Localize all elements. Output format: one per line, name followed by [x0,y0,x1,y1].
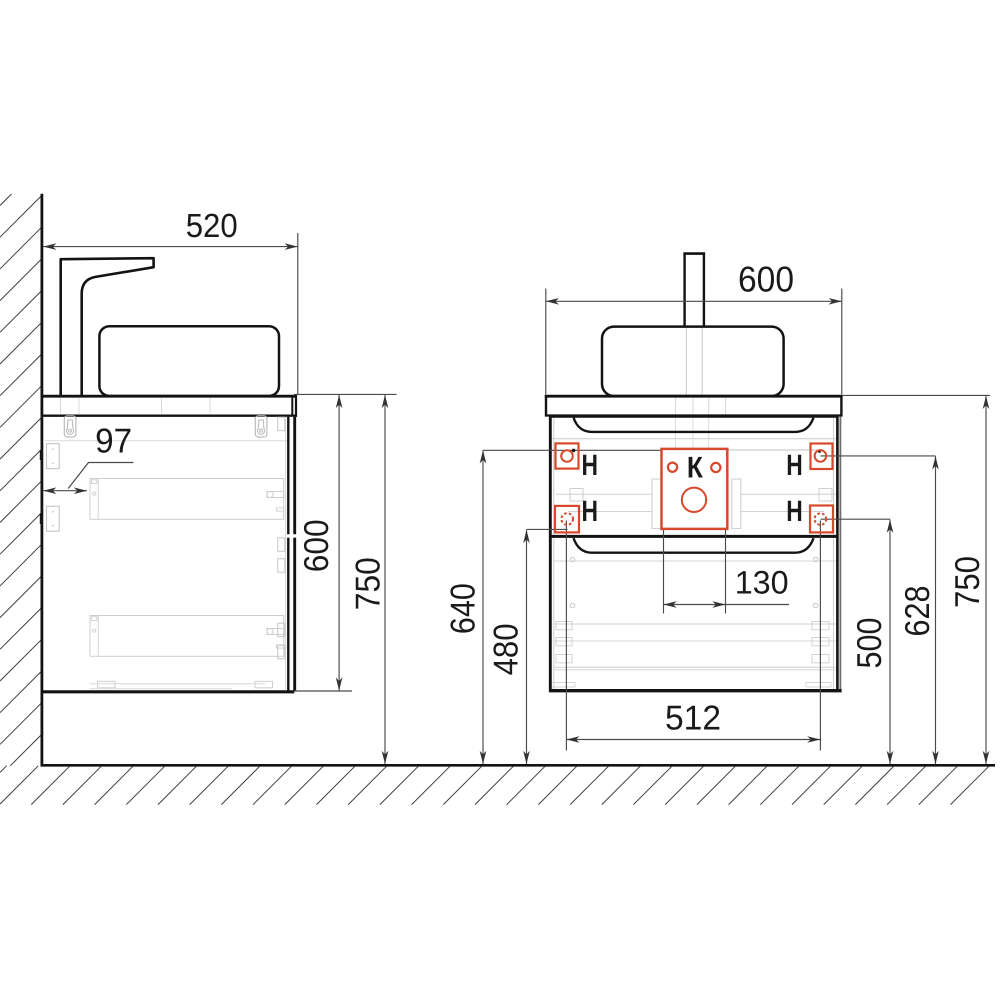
svg-text:H: H [786,495,803,528]
svg-text:600: 600 [298,519,336,572]
svg-text:512: 512 [665,699,721,737]
svg-text:500: 500 [851,618,889,669]
svg-text:600: 600 [738,259,794,300]
svg-text:640: 640 [445,583,483,634]
svg-text:H: H [582,449,599,482]
svg-text:750: 750 [949,556,987,608]
svg-text:520: 520 [186,208,238,245]
svg-text:628: 628 [899,586,937,637]
svg-text:130: 130 [735,565,789,601]
svg-text:К: К [687,452,704,485]
svg-text:480: 480 [488,623,526,675]
svg-text:97: 97 [95,423,132,461]
svg-text:750: 750 [350,557,388,610]
svg-text:H: H [786,449,803,482]
svg-text:H: H [582,495,599,528]
